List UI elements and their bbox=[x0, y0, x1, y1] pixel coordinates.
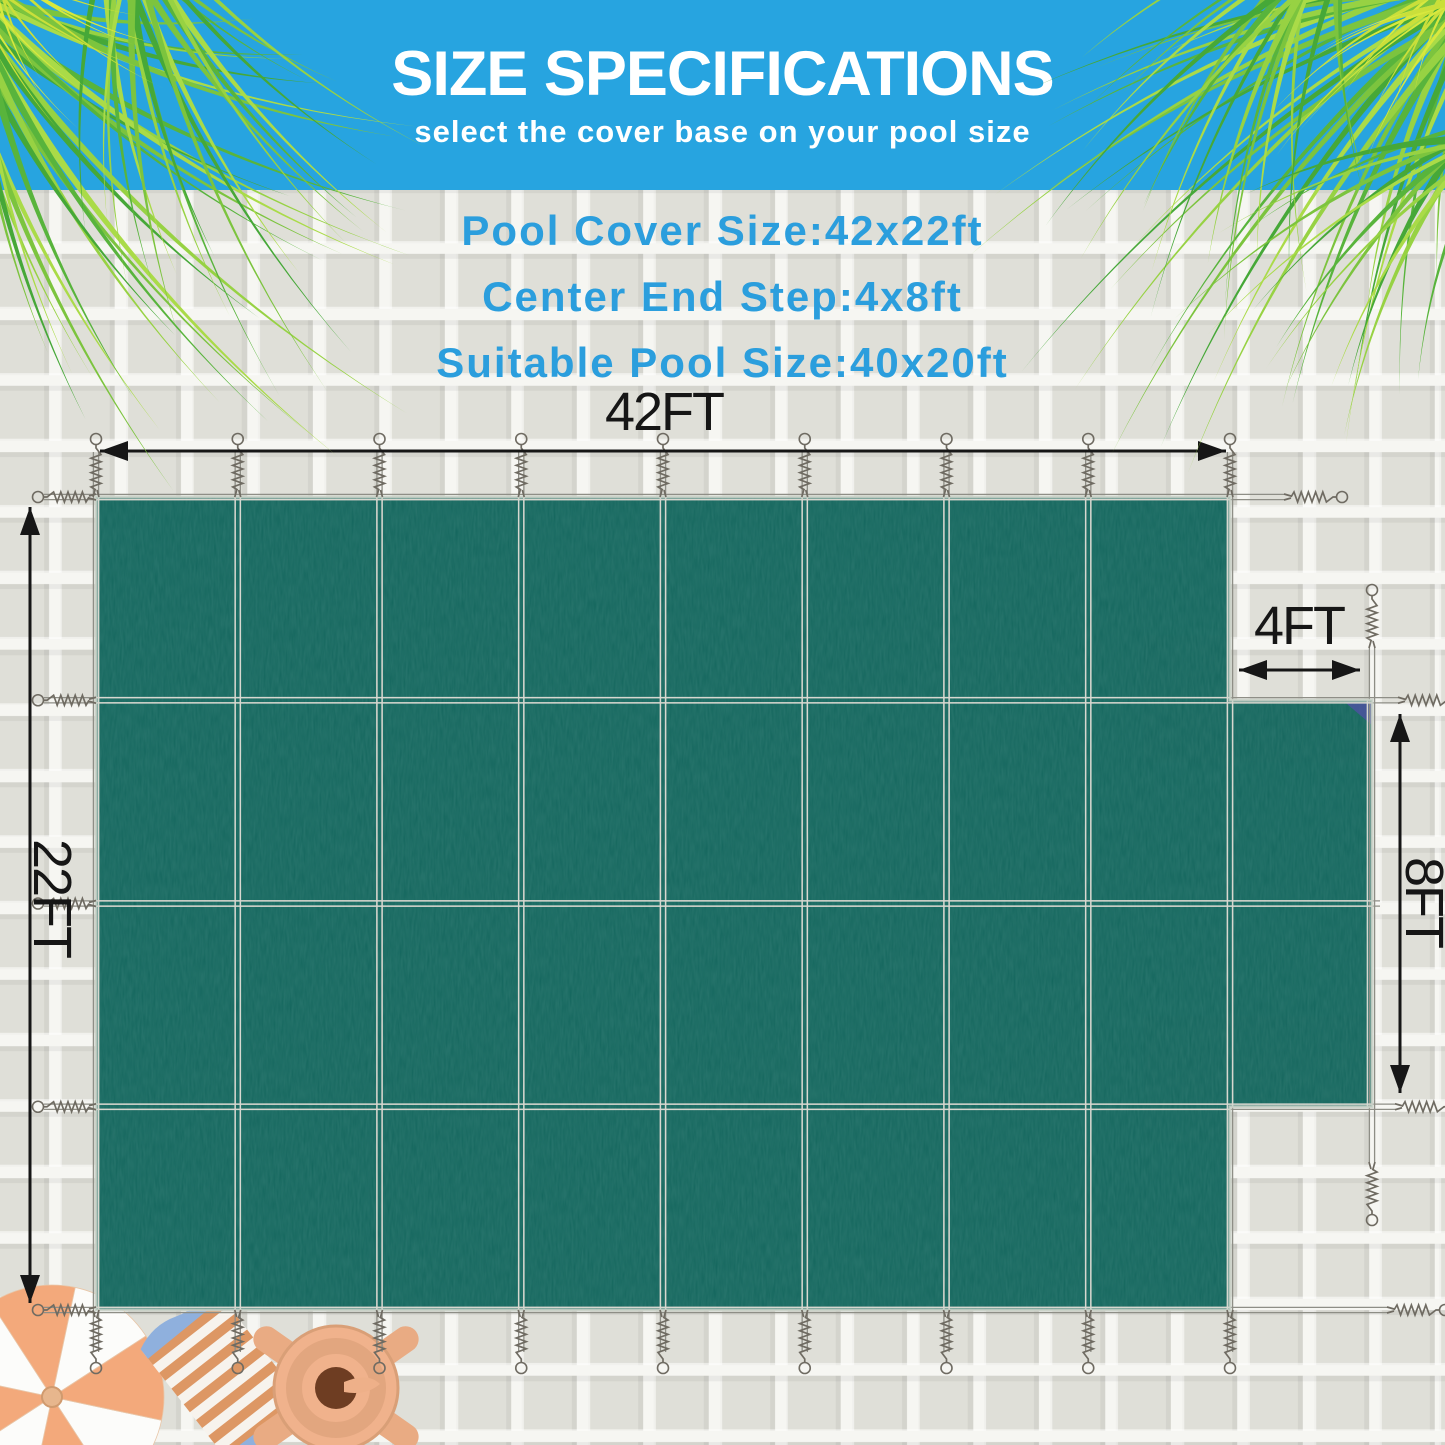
spring-anchor-icon bbox=[1284, 492, 1348, 503]
dimension-label-cover-width: 42FT bbox=[605, 385, 723, 439]
spring-anchor-icon bbox=[374, 434, 385, 498]
spring-anchor-icon bbox=[1083, 434, 1094, 498]
spring-anchor-icon bbox=[658, 434, 669, 498]
spring-anchor-icon bbox=[799, 1310, 810, 1374]
spring-anchor-icon bbox=[232, 434, 243, 498]
spring-anchor-icon bbox=[33, 1101, 97, 1112]
spring-anchor-icon bbox=[33, 492, 97, 503]
spring-anchor-icon bbox=[1367, 1162, 1378, 1226]
spec-center-end-step: Center End Step:4x8ft bbox=[0, 264, 1445, 330]
dimension-label-step-width: 4FT bbox=[1254, 599, 1344, 653]
spec-pool-cover-size: Pool Cover Size:42x22ft bbox=[0, 198, 1445, 264]
infographic-canvas: SIZE SPECIFICATIONS select the cover bas… bbox=[0, 0, 1445, 1445]
spec-text-block: Pool Cover Size:42x22ft Center End Step:… bbox=[0, 198, 1445, 396]
spring-anchor-icon bbox=[941, 1310, 952, 1374]
spring-anchor-icon bbox=[1225, 434, 1236, 498]
spring-anchor-icon bbox=[941, 434, 952, 498]
spring-anchor-icon bbox=[1225, 1310, 1236, 1374]
spring-anchor-icon bbox=[1395, 1101, 1445, 1112]
spring-anchor-icon bbox=[33, 695, 97, 706]
donut-float-icon bbox=[248, 1321, 423, 1445]
spring-anchor-icon bbox=[1367, 585, 1378, 649]
spring-anchor-icon bbox=[799, 434, 810, 498]
spring-anchor-icon bbox=[1083, 1310, 1094, 1374]
spring-anchor-icon bbox=[1387, 1305, 1445, 1316]
spring-anchor-icon bbox=[1398, 695, 1445, 706]
spring-anchor-icon bbox=[516, 434, 527, 498]
cover-fabric bbox=[96, 497, 1372, 1310]
dimension-label-cover-height: 22FT bbox=[25, 839, 79, 957]
spring-anchor-icon bbox=[516, 1310, 527, 1374]
spring-anchor-icon bbox=[658, 1310, 669, 1374]
dimension-label-step-height: 8FT bbox=[1397, 857, 1445, 947]
spring-anchor-icon bbox=[91, 434, 102, 498]
